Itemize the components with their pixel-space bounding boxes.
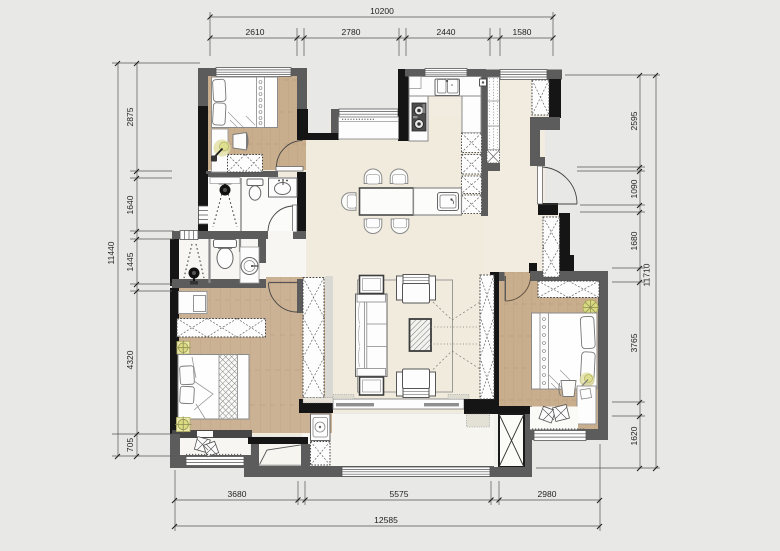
svg-text:2980: 2980 — [538, 489, 557, 499]
svg-text:3765: 3765 — [629, 333, 639, 352]
svg-text:1090: 1090 — [629, 179, 639, 198]
svg-text:11710: 11710 — [642, 263, 652, 286]
svg-text:2595: 2595 — [629, 111, 639, 130]
svg-text:2610: 2610 — [246, 27, 265, 37]
svg-text:1620: 1620 — [629, 426, 639, 445]
svg-text:2875: 2875 — [125, 107, 135, 126]
svg-text:1580: 1580 — [513, 27, 532, 37]
svg-text:705: 705 — [125, 438, 135, 452]
svg-text:10200: 10200 — [370, 6, 394, 16]
svg-text:3680: 3680 — [228, 489, 247, 499]
svg-text:5575: 5575 — [390, 489, 409, 499]
svg-text:1680: 1680 — [629, 231, 639, 250]
svg-text:1640: 1640 — [125, 195, 135, 214]
svg-text:1445: 1445 — [125, 252, 135, 271]
svg-text:4320: 4320 — [125, 350, 135, 369]
svg-text:12585: 12585 — [374, 515, 398, 525]
svg-text:2440: 2440 — [437, 27, 456, 37]
svg-text:11440: 11440 — [106, 241, 116, 264]
svg-text:2780: 2780 — [342, 27, 361, 37]
